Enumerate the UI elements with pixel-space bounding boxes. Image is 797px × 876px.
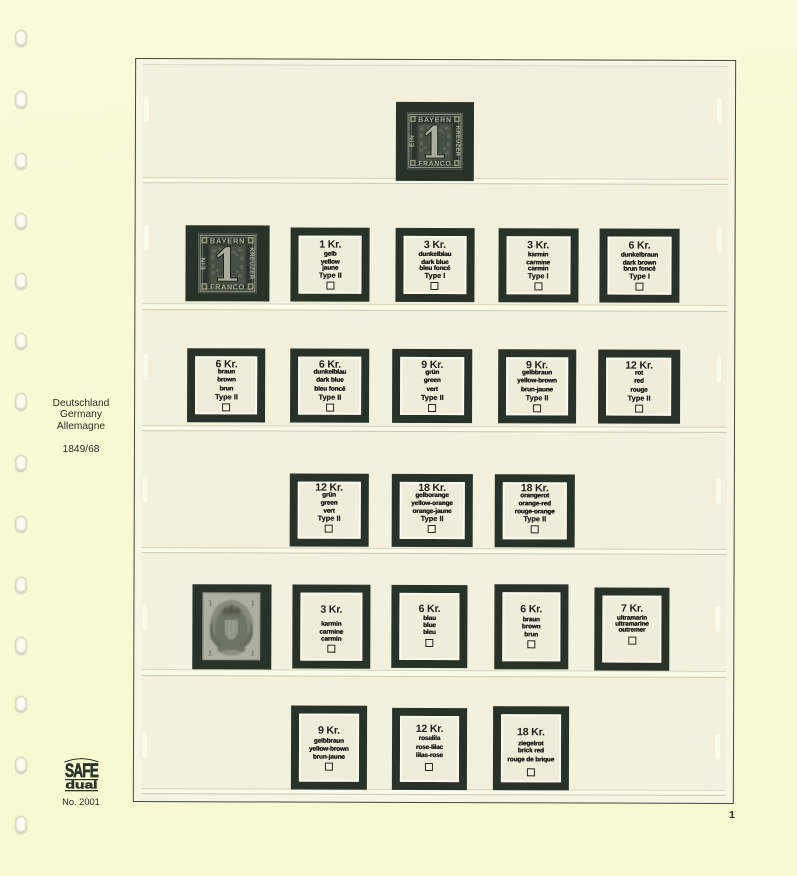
svg-text:FRANCO: FRANCO: [210, 282, 245, 291]
svg-text:EIN: EIN: [200, 256, 207, 269]
svg-text:BAYERN: BAYERN: [418, 117, 452, 124]
svg-text:1: 1: [208, 598, 212, 607]
svg-text:SAFE: SAFE: [65, 759, 99, 781]
svg-text:1: 1: [251, 598, 255, 607]
svg-text:BAYERN: BAYERN: [209, 236, 244, 245]
svg-text:1: 1: [250, 649, 254, 658]
svg-text:KREUZER: KREUZER: [247, 247, 254, 279]
svg-text:KREUZER: KREUZER: [454, 126, 460, 157]
svg-text:1: 1: [208, 649, 212, 658]
svg-text:dual: dual: [65, 780, 97, 792]
svg-text:EIN: EIN: [408, 135, 415, 147]
svg-text:FRANCO: FRANCO: [418, 161, 451, 168]
